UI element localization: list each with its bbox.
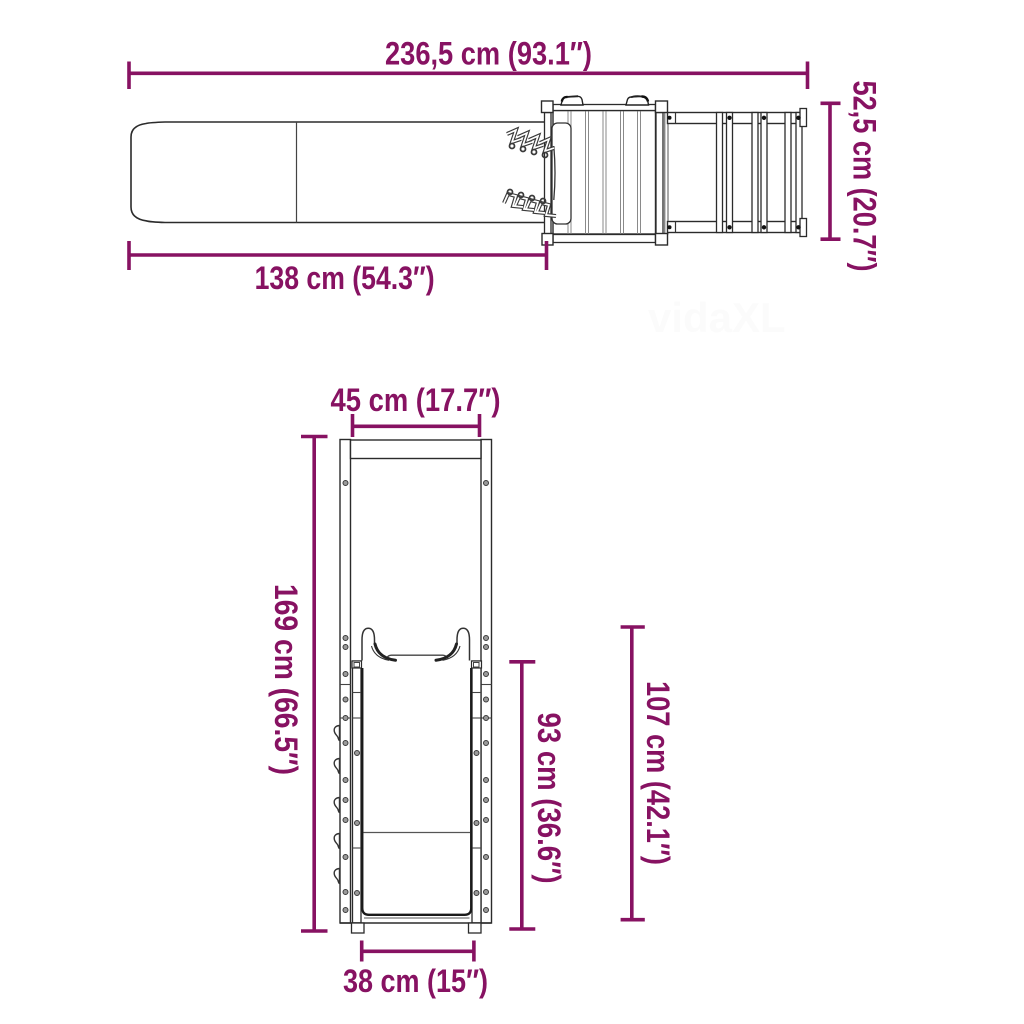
svg-text:vidaXL: vidaXL [648, 294, 786, 341]
svg-text:45 cm (17.7″): 45 cm (17.7″) [331, 382, 501, 418]
svg-text:138 cm (54.3″): 138 cm (54.3″) [255, 260, 435, 296]
svg-text:52,5 cm (20.7″): 52,5 cm (20.7″) [847, 81, 883, 272]
svg-text:38 cm (15″): 38 cm (15″) [343, 963, 488, 999]
svg-text:169 cm (66.5″): 169 cm (66.5″) [268, 584, 304, 775]
svg-text:107 cm (42.1″): 107 cm (42.1″) [640, 681, 676, 865]
svg-text:236,5 cm (93.1″): 236,5 cm (93.1″) [385, 36, 592, 72]
svg-text:93 cm (36.6″): 93 cm (36.6″) [531, 713, 567, 884]
